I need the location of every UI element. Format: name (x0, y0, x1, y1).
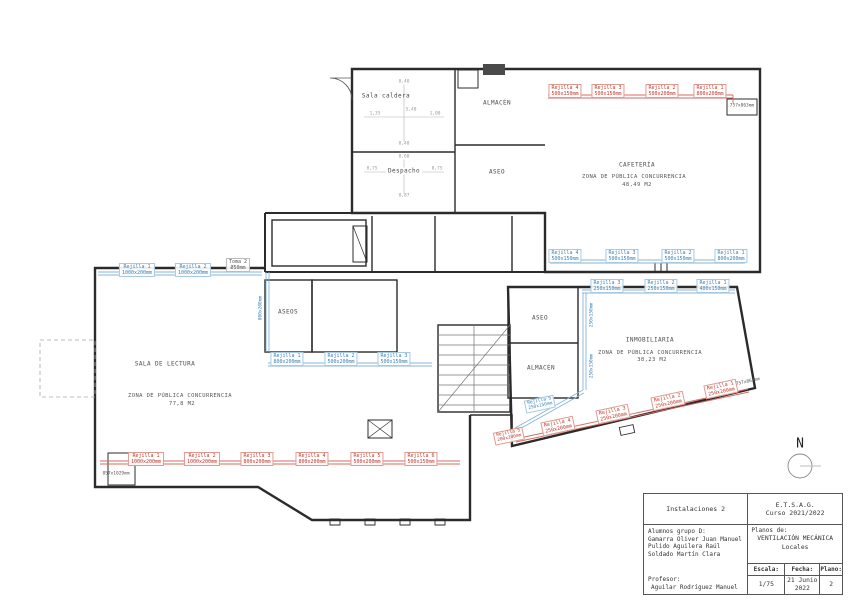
room-label-inmobiliaria: INMOBILIARIA (626, 337, 674, 344)
duct-size-vertical-inm-2: 250x150mm (590, 354, 595, 378)
professor-block: Profesor: Aguilar Rodríguez Manuel (648, 576, 743, 591)
grille-label-lec-sup-4: Rejilla 4 800x200mm (295, 452, 328, 466)
school-name: E.T.S.A.G. (776, 501, 815, 509)
grille-size: 500x150mm (594, 91, 621, 97)
grille-size: 800x200mm (298, 459, 325, 465)
cafeteria-zone-label: ZONA DE PÚBLICA CONCURRENCIA (582, 174, 686, 180)
students-block: Alumnos grupo D: Gamarra Oliver Juan Man… (648, 528, 743, 558)
shaft-size-right-top: 757x863mm (730, 104, 754, 109)
dim-despacho-left: 0,75 (366, 167, 379, 172)
dim-despacho-right: 0,75 (431, 167, 444, 172)
subject-text: Instalaciones 2 (666, 505, 725, 513)
room-label-almacen-top: ALMACÉN (483, 100, 511, 107)
grille-label-inm-ret-3: Rejilla 3 250x150mm (590, 279, 623, 293)
student-name: Gamarra Oliver Juan Manuel (648, 536, 743, 544)
room-label-sala-caldera: Sala caldera (362, 93, 410, 100)
lectura-area-label: 77,8 M2 (169, 401, 195, 407)
grille-label-inm-ret-1: Rejilla 1 400x150mm (696, 279, 729, 293)
grille-size: 500x200mm (327, 359, 354, 365)
lectura-zone-label: ZONA DE PÚBLICA CONCURRENCIA (128, 393, 232, 399)
grille-label-lec-sup-6: Rejilla 6 500x150mm (404, 452, 437, 466)
plano-value-text: 2 (829, 581, 833, 589)
room-label-cafeteria: CAFETERÍA (619, 162, 655, 169)
duct-size-vertical-inm-1: 250x150mm (590, 303, 595, 327)
vent-shaft-box (483, 64, 505, 75)
grille-label-lec-ret-1: Rejilla 1 1000x200mm (119, 263, 155, 277)
cafeteria-area-label: 48,49 M2 (622, 182, 652, 188)
grille-size: 800x200mm (273, 359, 300, 365)
dim-caldera-left: 1,35 (369, 112, 382, 117)
grille-size: 500x150mm (551, 91, 578, 97)
grille-size: 1000x200mm (178, 270, 208, 276)
grille-size: 800x200mm (717, 256, 744, 262)
dim-caldera-top: 0,40 (398, 80, 411, 85)
toma-size: Ø50mm (229, 265, 247, 271)
scale-value-text: 1/75 (759, 581, 774, 589)
title-block-right-column: E.T.S.A.G. Curso 2021/2022 Planos de: VE… (748, 494, 842, 594)
grille-label-aseos-2: Rejilla 2 500x200mm (324, 352, 357, 366)
dim-caldera-right: 1,00 (429, 112, 442, 117)
dashed-outline (40, 340, 95, 397)
grille-label-lec-sup-5: Rejilla 5 500x200mm (350, 452, 383, 466)
title-block-left-column: Instalaciones 2 Alumnos grupo D: Gamarra… (644, 494, 748, 594)
date-column: Fecha: 21 Junio 2022 (785, 564, 820, 594)
date-value: 21 Junio 2022 (785, 576, 819, 594)
professor-label: Profesor: (648, 576, 743, 584)
plans-subtitle: Locales (751, 544, 839, 553)
grille-label-caf-ret-4: Rejilla 4 500x150mm (548, 249, 581, 263)
grille-size: 500x150mm (380, 359, 407, 365)
dim-caldera-mid: 5,40 (405, 108, 418, 113)
dim-despacho-bottom: 0,87 (398, 194, 411, 199)
room-label-aseos: ASEOS (278, 309, 298, 316)
room-label-despacho: Despacho (386, 168, 422, 175)
date-label: Fecha: (785, 564, 819, 576)
scale-value: 1/75 (748, 576, 784, 594)
plano-column: Plano: 2 (820, 564, 842, 594)
grille-size: 1000x200mm (187, 459, 217, 465)
grille-label-caf-sup-3: Rejilla 3 500x150mm (591, 84, 624, 98)
shaft-size-left: 857x1029mm (102, 472, 129, 477)
course-text: Curso 2021/2022 (766, 509, 825, 517)
inmobiliaria-area-label: 38,23 M2 (637, 357, 667, 363)
grille-size: 500x150mm (608, 256, 635, 262)
professor-name: Aguilar Rodríguez Manuel (648, 584, 743, 592)
grille-label-aseos-1: Rejilla 1 800x200mm (270, 352, 303, 366)
duct-size-vertical-aseos: 800x200mm (259, 296, 264, 320)
student-name: Pulido Aguilera Raúl (648, 543, 743, 551)
floor-plan-sheet: Sala caldera Despacho ALMACÉN ASEO ASEOS… (0, 0, 848, 600)
dim-despacho-top: 0,60 (398, 155, 411, 160)
grille-label-caf-sup-2: Rejilla 2 500x200mm (645, 84, 678, 98)
grille-size: 500x150mm (551, 256, 578, 262)
grille-label-caf-sup-1: Rejilla 1 800x200mm (693, 84, 726, 98)
stairs (438, 325, 510, 412)
room-label-almacen-mid: ALMACÉN (527, 365, 555, 372)
subject-cell: Instalaciones 2 (644, 494, 747, 525)
people-cell: Alumnos grupo D: Gamarra Oliver Juan Man… (644, 525, 747, 594)
north-symbol (788, 454, 821, 478)
grille-label-caf-ret-2: Rejilla 2 500x150mm (661, 249, 694, 263)
scale-label: Escala: (748, 564, 784, 576)
grille-size: 250x150mm (593, 286, 620, 292)
grille-label-caf-sup-4: Rejilla 4 500x150mm (548, 84, 581, 98)
grille-label-lec-sup-1: Rejilla 1 1000x200mm (128, 452, 164, 466)
grille-label-caf-ret-3: Rejilla 3 500x150mm (605, 249, 638, 263)
dim-caldera-bottom: 0,40 (398, 142, 411, 147)
plano-label: Plano: (820, 564, 842, 576)
grille-label-lec-sup-3: Rejilla 3 800x200mm (240, 452, 273, 466)
grille-size: 500x200mm (353, 459, 380, 465)
date-value-line2: 2022 (795, 585, 810, 593)
grille-size: 1000x200mm (122, 270, 152, 276)
grille-size: 250x150mm (647, 286, 674, 292)
room-label-aseo-top: ASEO (489, 169, 505, 176)
grille-size: 800x200mm (243, 459, 270, 465)
grille-label-caf-ret-1: Rejilla 1 800x200mm (714, 249, 747, 263)
toma-label: Toma 2 Ø50mm (226, 258, 250, 272)
grille-label-lec-ret-2: Rejilla 2 1000x200mm (175, 263, 211, 277)
grille-label-lec-sup-2: Rejilla 2 1000x200mm (184, 452, 220, 466)
grille-size: 500x150mm (664, 256, 691, 262)
grille-size: 500x200mm (648, 91, 675, 97)
plans-title: VENTILACIÓN MECÁNICA (751, 535, 839, 544)
students-label: Alumnos grupo D: (648, 528, 743, 536)
grille-size: 500x150mm (407, 459, 434, 465)
student-name: Soldado Martín Clara (648, 551, 743, 559)
room-label-aseo-mid: ASEO (532, 315, 548, 322)
grille-size: 800x200mm (696, 91, 723, 97)
room-label-sala-lectura: SALA DE LECTURA (135, 361, 195, 368)
scale-column: Escala: 1/75 (748, 564, 785, 594)
inmobiliaria-zone-label: ZONA DE PÚBLICA CONCURRENCIA (598, 350, 702, 356)
school-cell: E.T.S.A.G. Curso 2021/2022 (748, 494, 842, 525)
door-swing (330, 78, 352, 100)
grille-size: 400x150mm (699, 286, 726, 292)
plans-cell: Planos de: VENTILACIÓN MECÁNICA Locales (748, 525, 842, 564)
date-value-line1: 21 Junio (787, 577, 817, 585)
grille-size: 1000x200mm (131, 459, 161, 465)
grille-label-aseos-3: Rejilla 3 500x150mm (377, 352, 410, 366)
scale-date-plano-grid: Escala: 1/75 Fecha: 21 Junio 2022 Plano: (748, 564, 842, 594)
grille-label-inm-ret-2: Rejilla 2 250x150mm (644, 279, 677, 293)
north-label: N (796, 437, 804, 452)
plano-value: 2 (820, 576, 842, 594)
plans-label: Planos de: (751, 527, 839, 535)
title-block: Instalaciones 2 Alumnos grupo D: Gamarra… (643, 493, 843, 595)
